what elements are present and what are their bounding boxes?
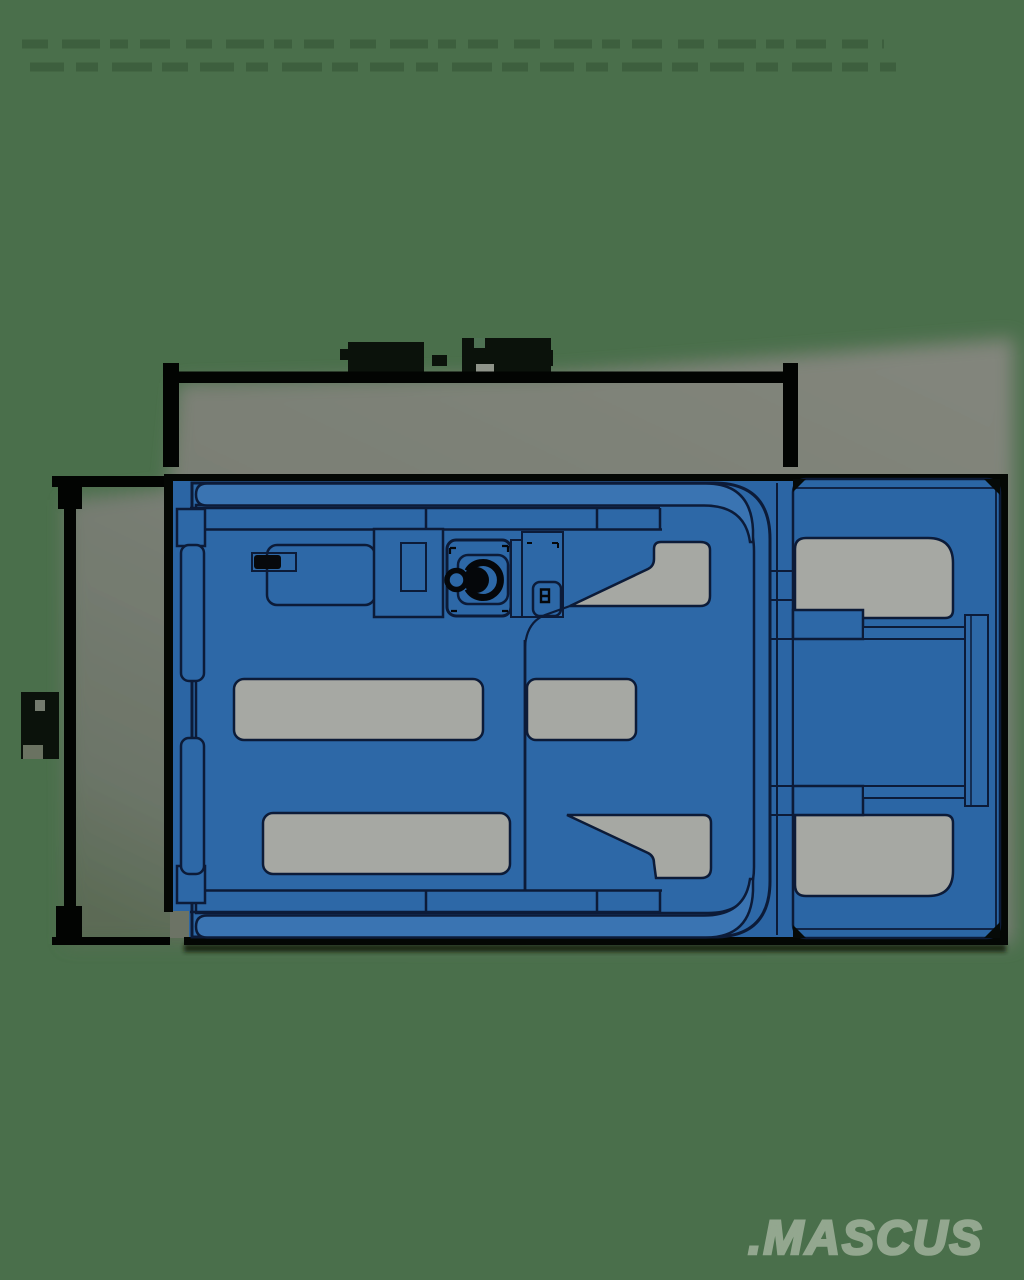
svg-text:.MASCUS: .MASCUS — [748, 1212, 983, 1265]
